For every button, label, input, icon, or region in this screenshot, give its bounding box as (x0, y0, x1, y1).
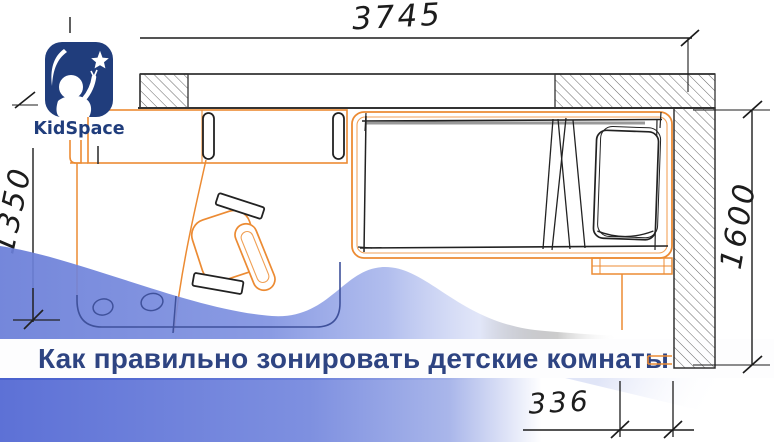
child-head (59, 75, 83, 99)
dimension-right: 1600 (693, 101, 770, 373)
door-swing-arc (174, 160, 206, 332)
page-title: Как правильно зонировать детские комнаты (0, 343, 669, 375)
child-arm (84, 77, 94, 99)
top-wall (138, 74, 715, 108)
chair-backrest (232, 220, 279, 293)
desk-chair (188, 193, 279, 294)
dimension-right-value: 1600 (714, 179, 764, 272)
dimension-left-tick (13, 288, 60, 329)
right-wall (674, 108, 715, 368)
dimension-top: 3745 (70, 0, 699, 92)
desk (70, 110, 347, 163)
wave-shape (0, 246, 700, 340)
chair-armrest (215, 193, 264, 219)
brand-name: KidSpace (33, 119, 124, 139)
crescent-icon (51, 49, 67, 86)
bed (352, 112, 672, 258)
star-icon (91, 51, 109, 69)
chair-armrest (192, 273, 243, 294)
dimension-top-value: 3745 (351, 0, 444, 37)
bottom-gradient-band (0, 378, 774, 442)
child-body (57, 96, 92, 117)
pouf (92, 297, 115, 317)
radiator (70, 140, 81, 163)
kidspace-logo: KidSpace (33, 42, 124, 139)
title-band: Как правильно зонировать детские комнаты (0, 339, 774, 378)
dimension-left: 1350 (0, 92, 39, 322)
cover-image: 3745 1350 (0, 0, 774, 442)
pillow (593, 126, 661, 240)
rug-under-wave (77, 262, 340, 333)
desk-legs (203, 113, 344, 159)
blanket-sketch (543, 118, 585, 250)
dimension-left-value: 1350 (0, 163, 39, 257)
pouf (139, 291, 164, 312)
bed-foot-shelf (592, 258, 672, 330)
